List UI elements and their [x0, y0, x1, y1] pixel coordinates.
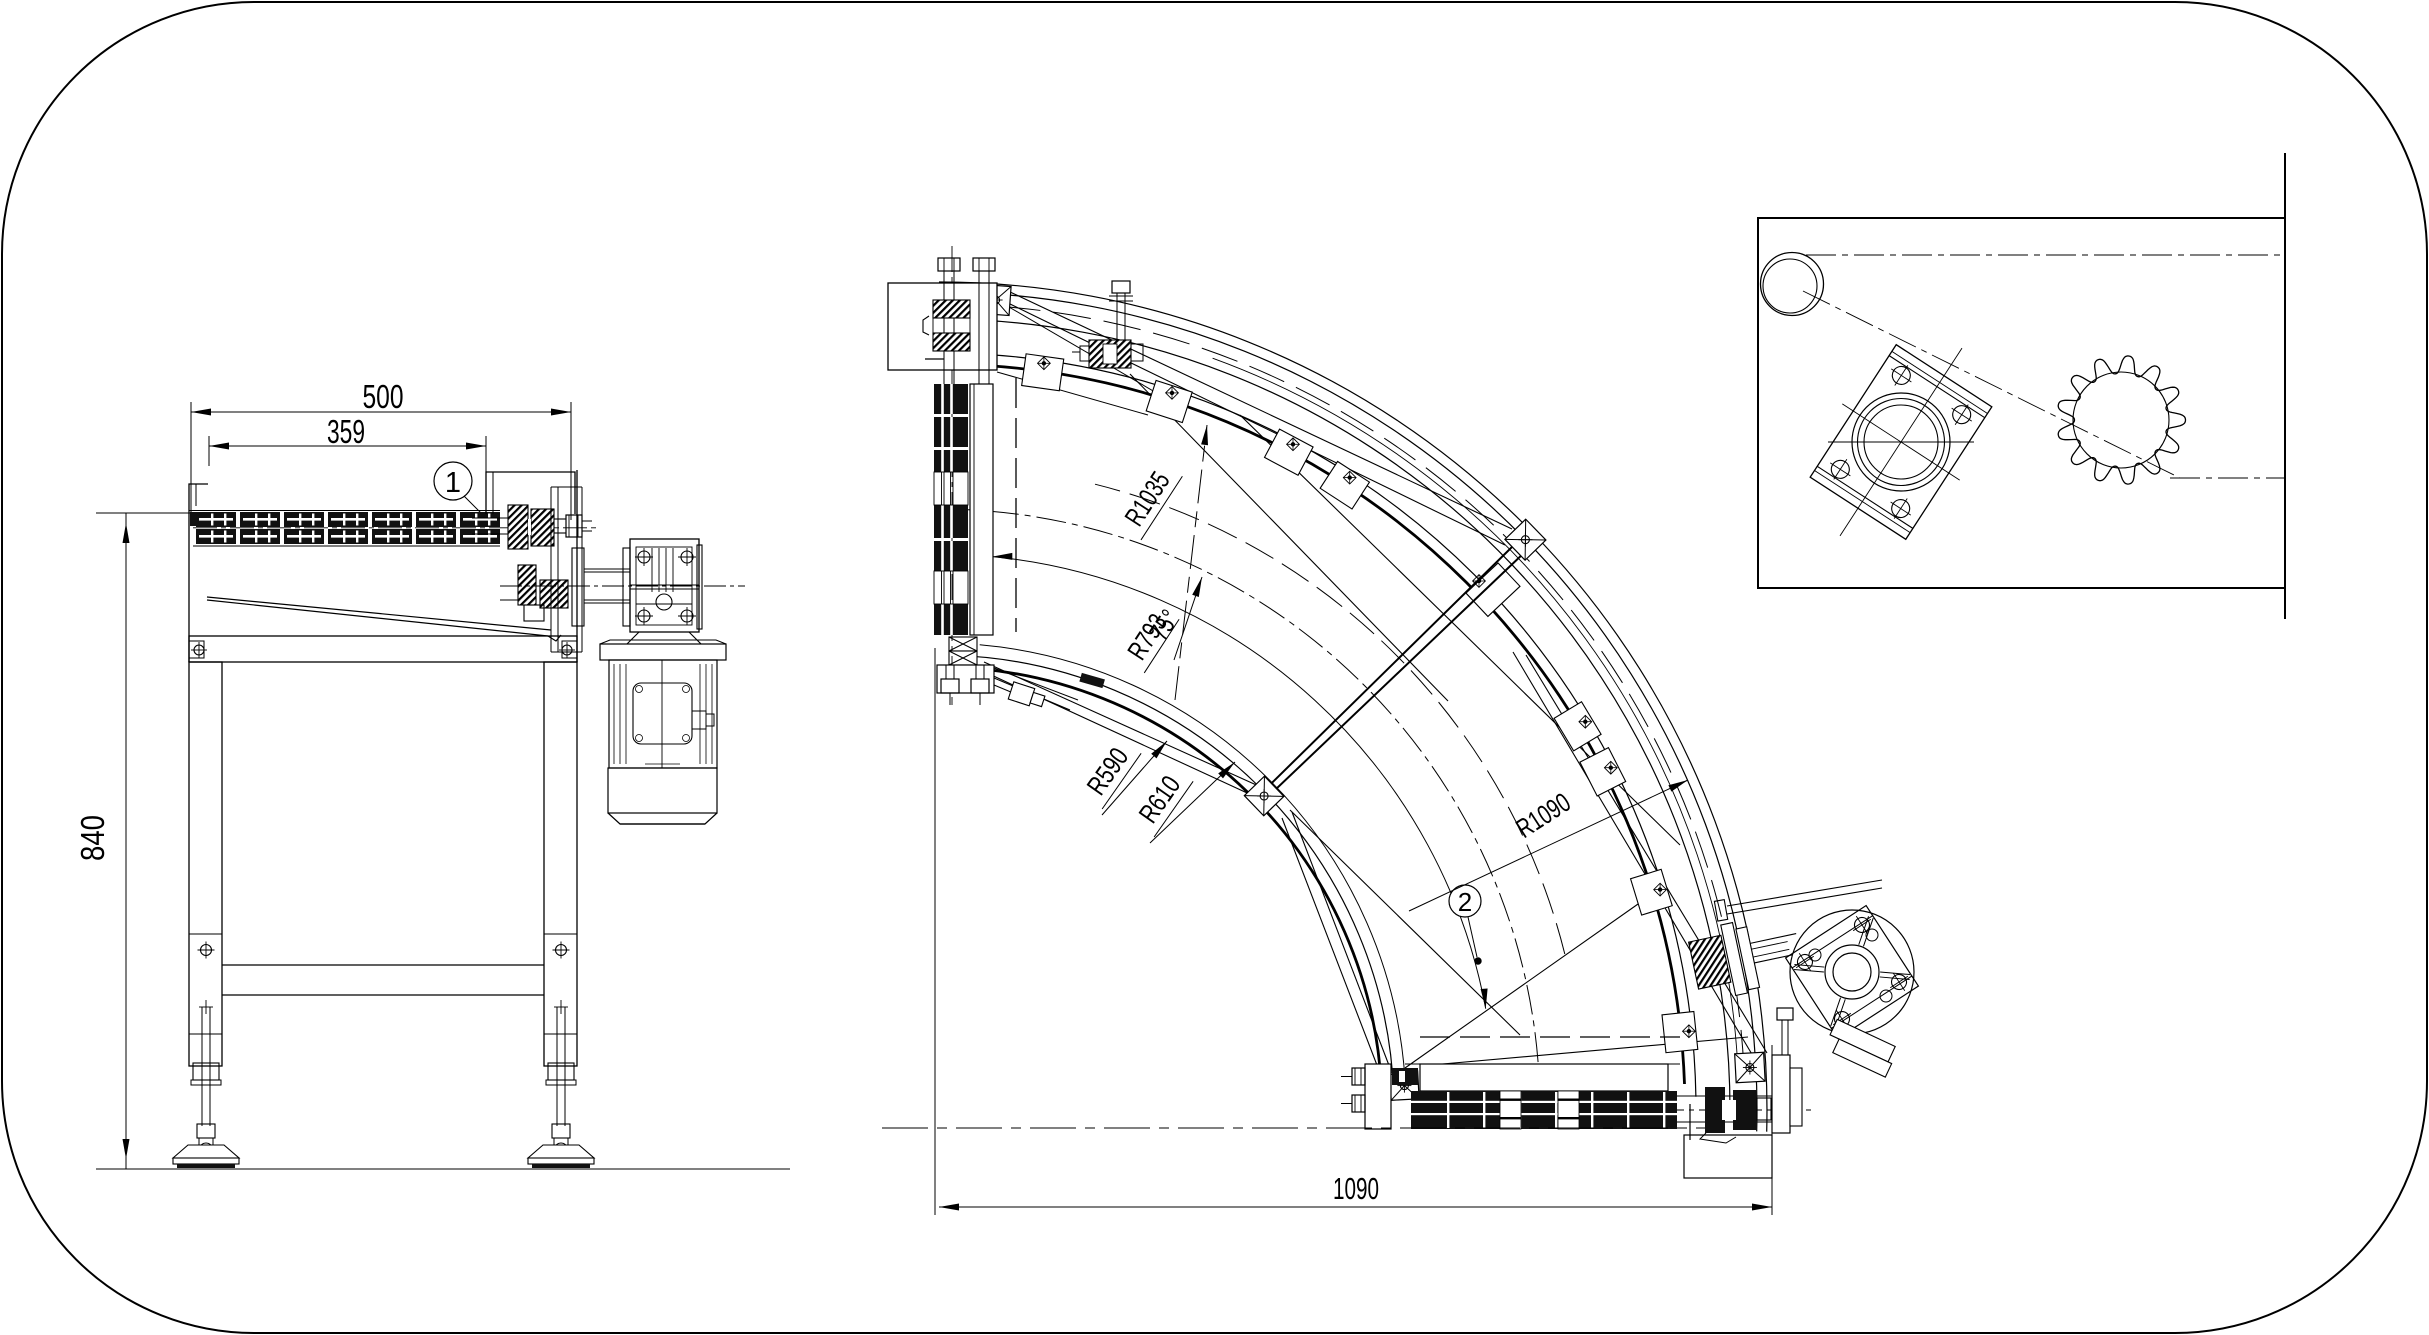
svg-text:1: 1 [445, 467, 461, 499]
svg-text:359: 359 [327, 413, 365, 450]
svg-text:1090: 1090 [1333, 1171, 1379, 1206]
svg-text:840: 840 [74, 815, 111, 861]
svg-text:500: 500 [363, 378, 404, 415]
svg-text:2: 2 [1458, 887, 1472, 917]
